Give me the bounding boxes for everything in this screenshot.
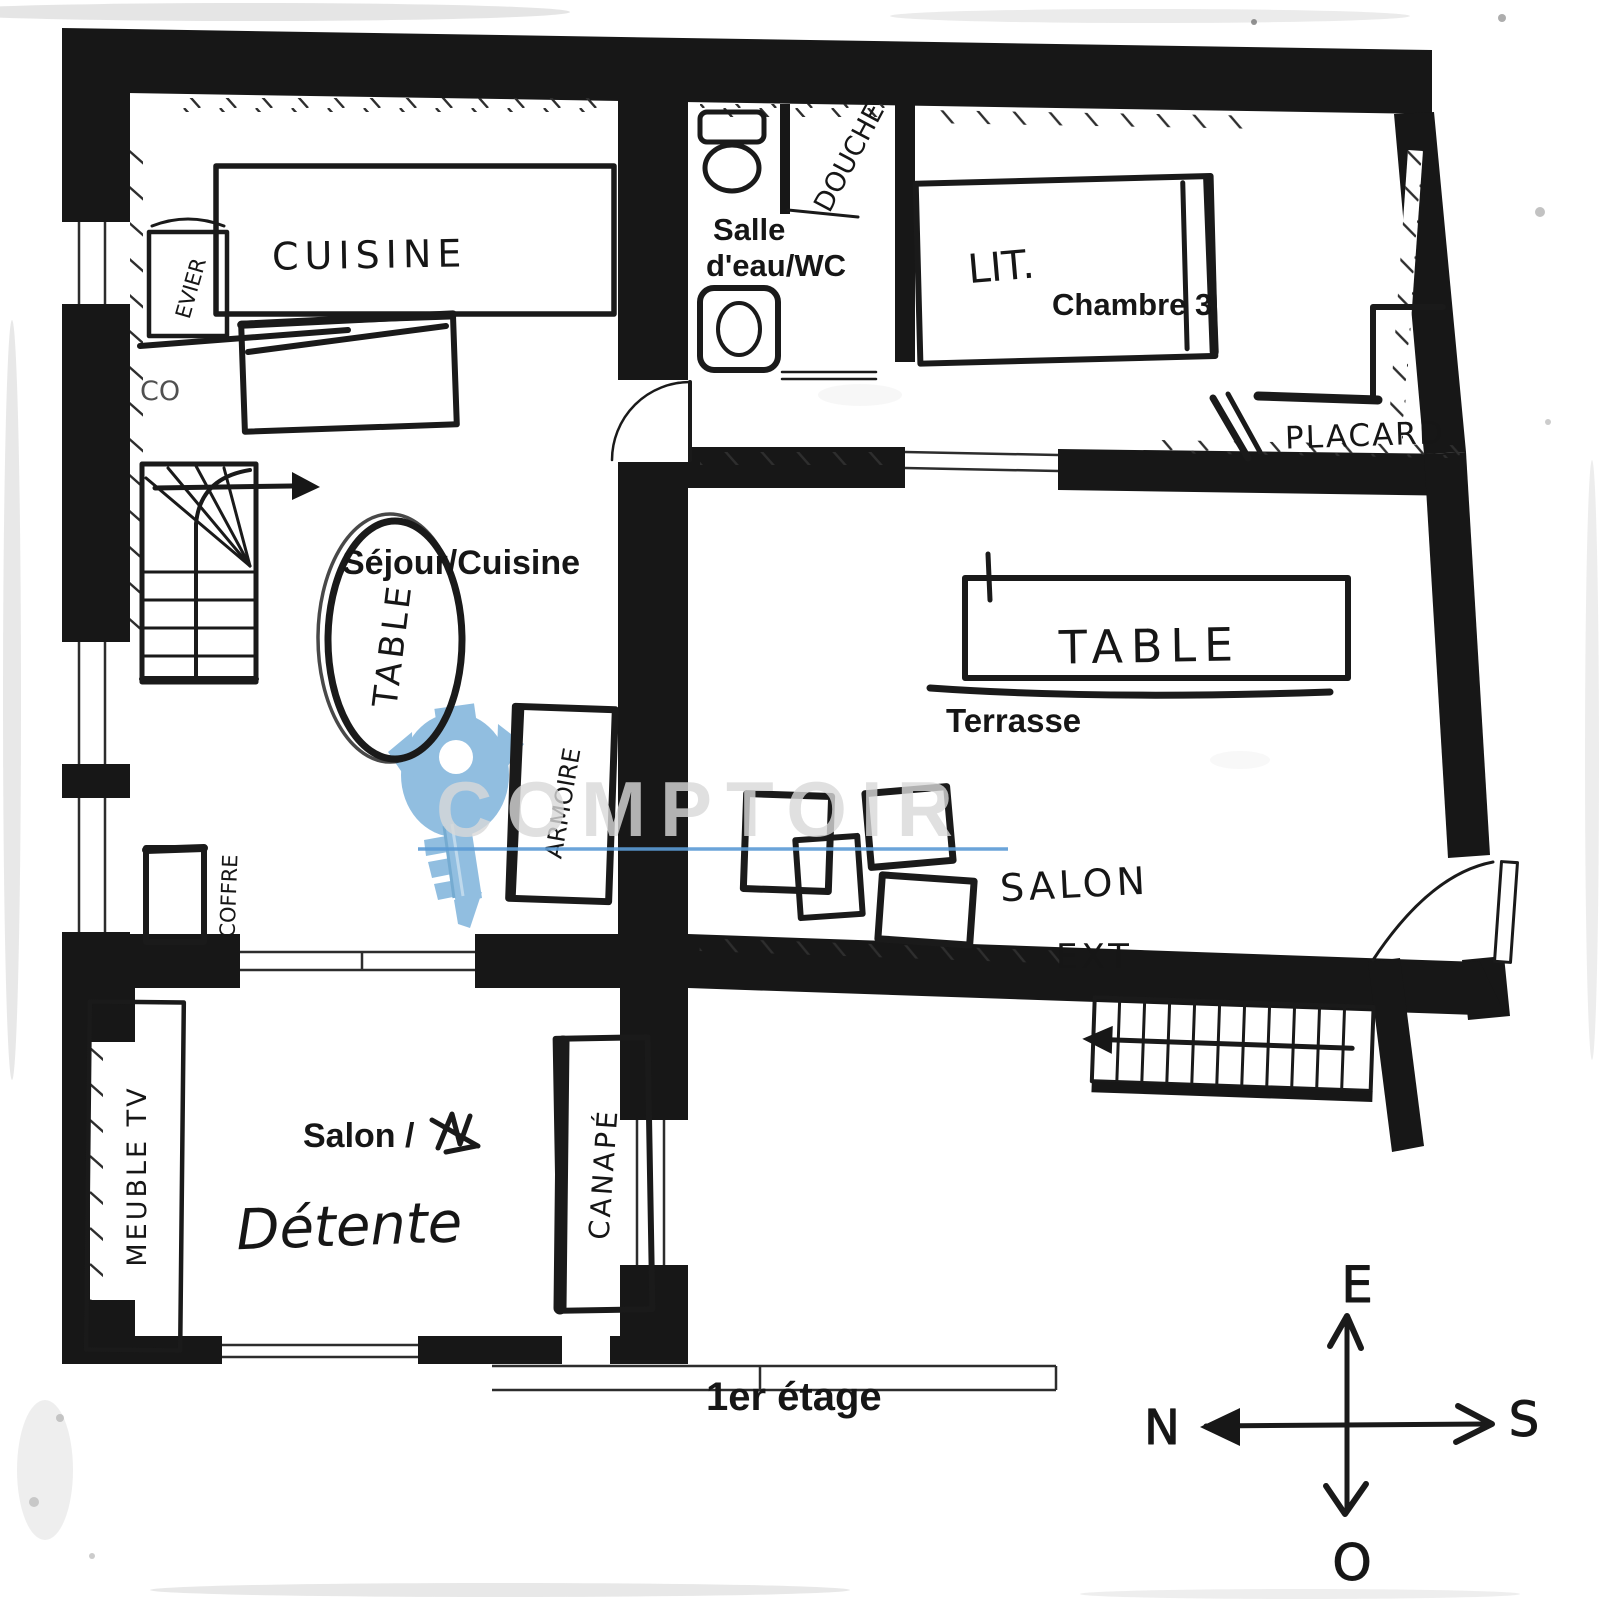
label-salon: Salon / — [303, 1117, 415, 1155]
label-salle-eau-2: d'eau/WC — [706, 248, 846, 283]
wall-salon-right-upper — [620, 988, 688, 1120]
label-coffre: COFFRE — [216, 854, 243, 938]
label-lit: LIT. — [966, 242, 1036, 294]
wall-bath-bedroom-divider — [895, 94, 915, 362]
compass-south: S — [1509, 1392, 1539, 1448]
label-placard: PLACARD — [1284, 415, 1445, 457]
compass-west: O — [1332, 1534, 1371, 1592]
wall-salon-top-right — [475, 934, 688, 988]
label-terrasse: Terrasse — [946, 702, 1081, 739]
scanned-floor-plan: CUISINE Salle d'eau/WC DOUCHE LIT. Chamb… — [0, 0, 1600, 1600]
wall-central-upper — [618, 94, 688, 380]
floor-plan-canvas: CUISINE Salle d'eau/WC DOUCHE LIT. Chamb… — [0, 0, 1600, 1600]
compass-north: N — [1144, 1400, 1180, 1456]
wall-central-lower — [618, 462, 688, 940]
label-chambre-3: Chambre 3 — [1052, 287, 1212, 322]
wall-salon-bottom-2 — [418, 1336, 562, 1364]
agency-watermark-text: COMPTOIR — [436, 765, 967, 853]
label-detente: Détente — [235, 1190, 463, 1263]
label-salon-ext-1: SALON — [999, 859, 1150, 911]
label-cuisine: CUISINE — [272, 231, 468, 278]
label-sejour-cuisine: Séjour/Cuisine — [342, 544, 580, 582]
label-salon-ext-2: EXT — [1056, 937, 1133, 977]
compass-east: E — [1341, 1256, 1373, 1314]
label-co: CO — [140, 376, 180, 407]
label-table-terrasse: TABLE — [1057, 617, 1241, 674]
wall-shower-divider — [780, 104, 790, 214]
floor-title: 1er étage — [706, 1375, 882, 1419]
label-meuble-tv: MEUBLE TV — [122, 1085, 153, 1266]
label-salle-eau-1: Salle — [713, 212, 785, 247]
